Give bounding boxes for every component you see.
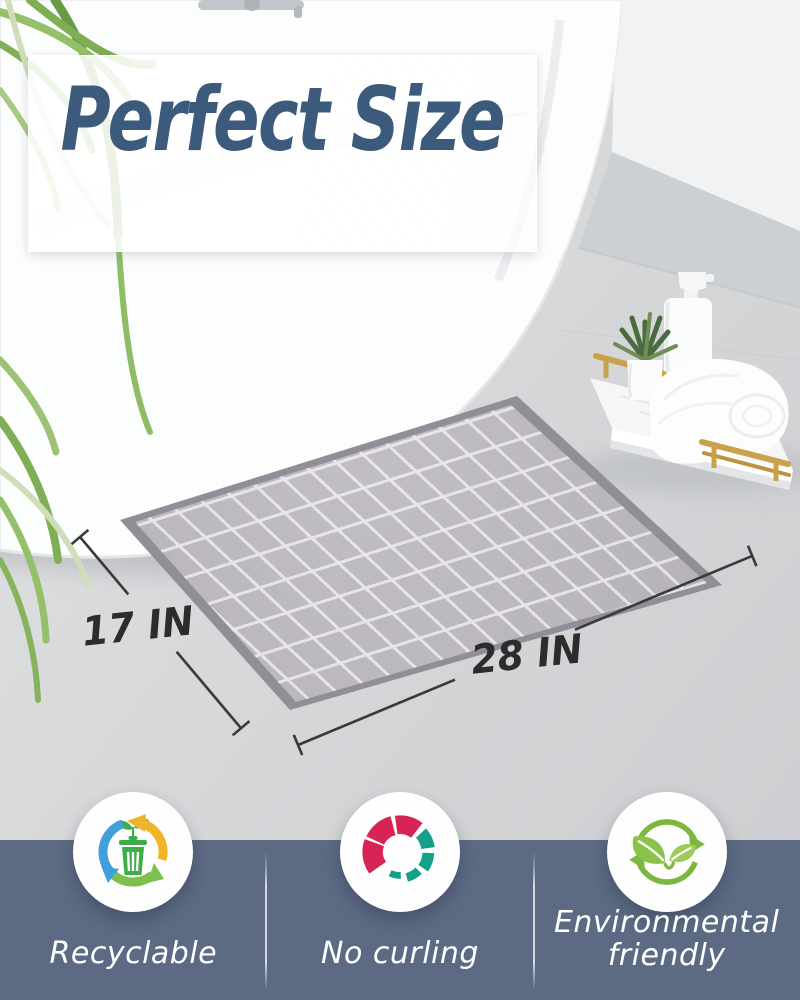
tray-gold-handle-right <box>702 442 789 481</box>
side-plant-graphic <box>0 360 88 700</box>
product-infographic: Perfect Size 17 IN 28 IN <box>0 0 800 1000</box>
soap-dispenser-graphic <box>664 272 714 380</box>
faucet-icon <box>198 0 304 18</box>
recycle-bin-icon <box>93 812 173 892</box>
plant-pot-graphic <box>615 314 676 400</box>
tray-graphic <box>575 272 800 494</box>
rolled-towel-graphic <box>650 359 789 464</box>
wall-graphic <box>560 0 800 360</box>
feature-icon-badge <box>73 792 193 912</box>
tray-gold-handle-left <box>596 356 664 388</box>
feature-label: No curling <box>267 936 534 971</box>
marble-tray-graphic <box>590 378 793 490</box>
feature-label: Environmental friendly <box>533 906 800 972</box>
depth-dimension-label: 17 IN <box>80 598 196 655</box>
features-panel: Recyclable No curling <box>0 840 800 1000</box>
feature-no-curling: No curling <box>267 840 534 1000</box>
no-curl-icon <box>359 811 441 893</box>
feature-recyclable: Recyclable <box>0 840 267 1000</box>
feature-divider <box>533 852 535 990</box>
feature-label-text: Environmental friendly <box>542 906 792 972</box>
page-title: Perfect Size <box>61 68 504 171</box>
feature-icon-badge <box>607 792 727 912</box>
feature-divider <box>265 852 267 990</box>
eco-leaves-icon <box>627 812 707 892</box>
feature-label: Recyclable <box>0 936 267 971</box>
title-banner: Perfect Size <box>28 55 537 252</box>
feature-environmental: Environmental friendly <box>533 840 800 1000</box>
feature-icon-badge <box>340 792 460 912</box>
